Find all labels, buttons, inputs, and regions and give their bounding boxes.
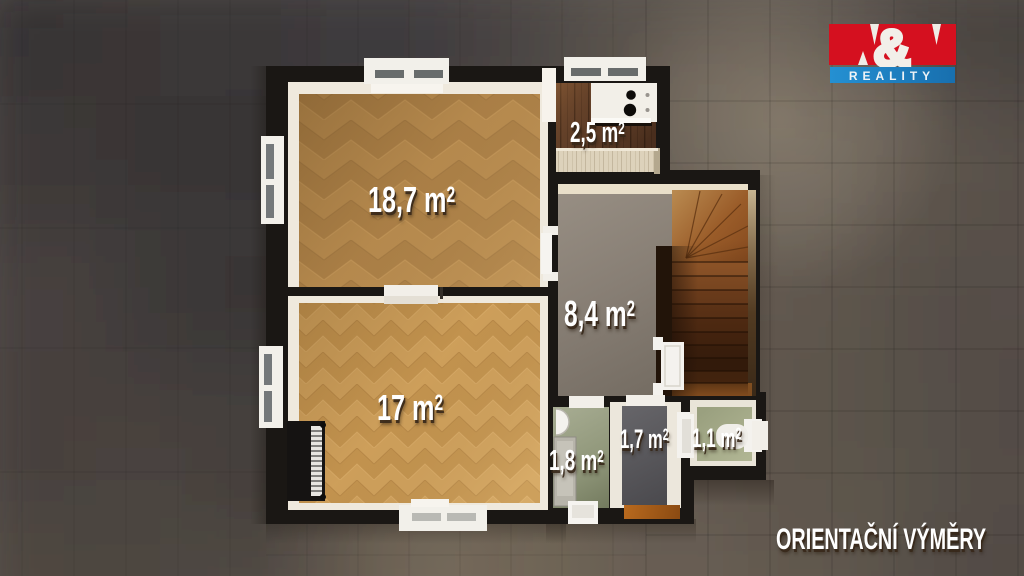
svg-text:REALITY: REALITY [849, 69, 935, 83]
